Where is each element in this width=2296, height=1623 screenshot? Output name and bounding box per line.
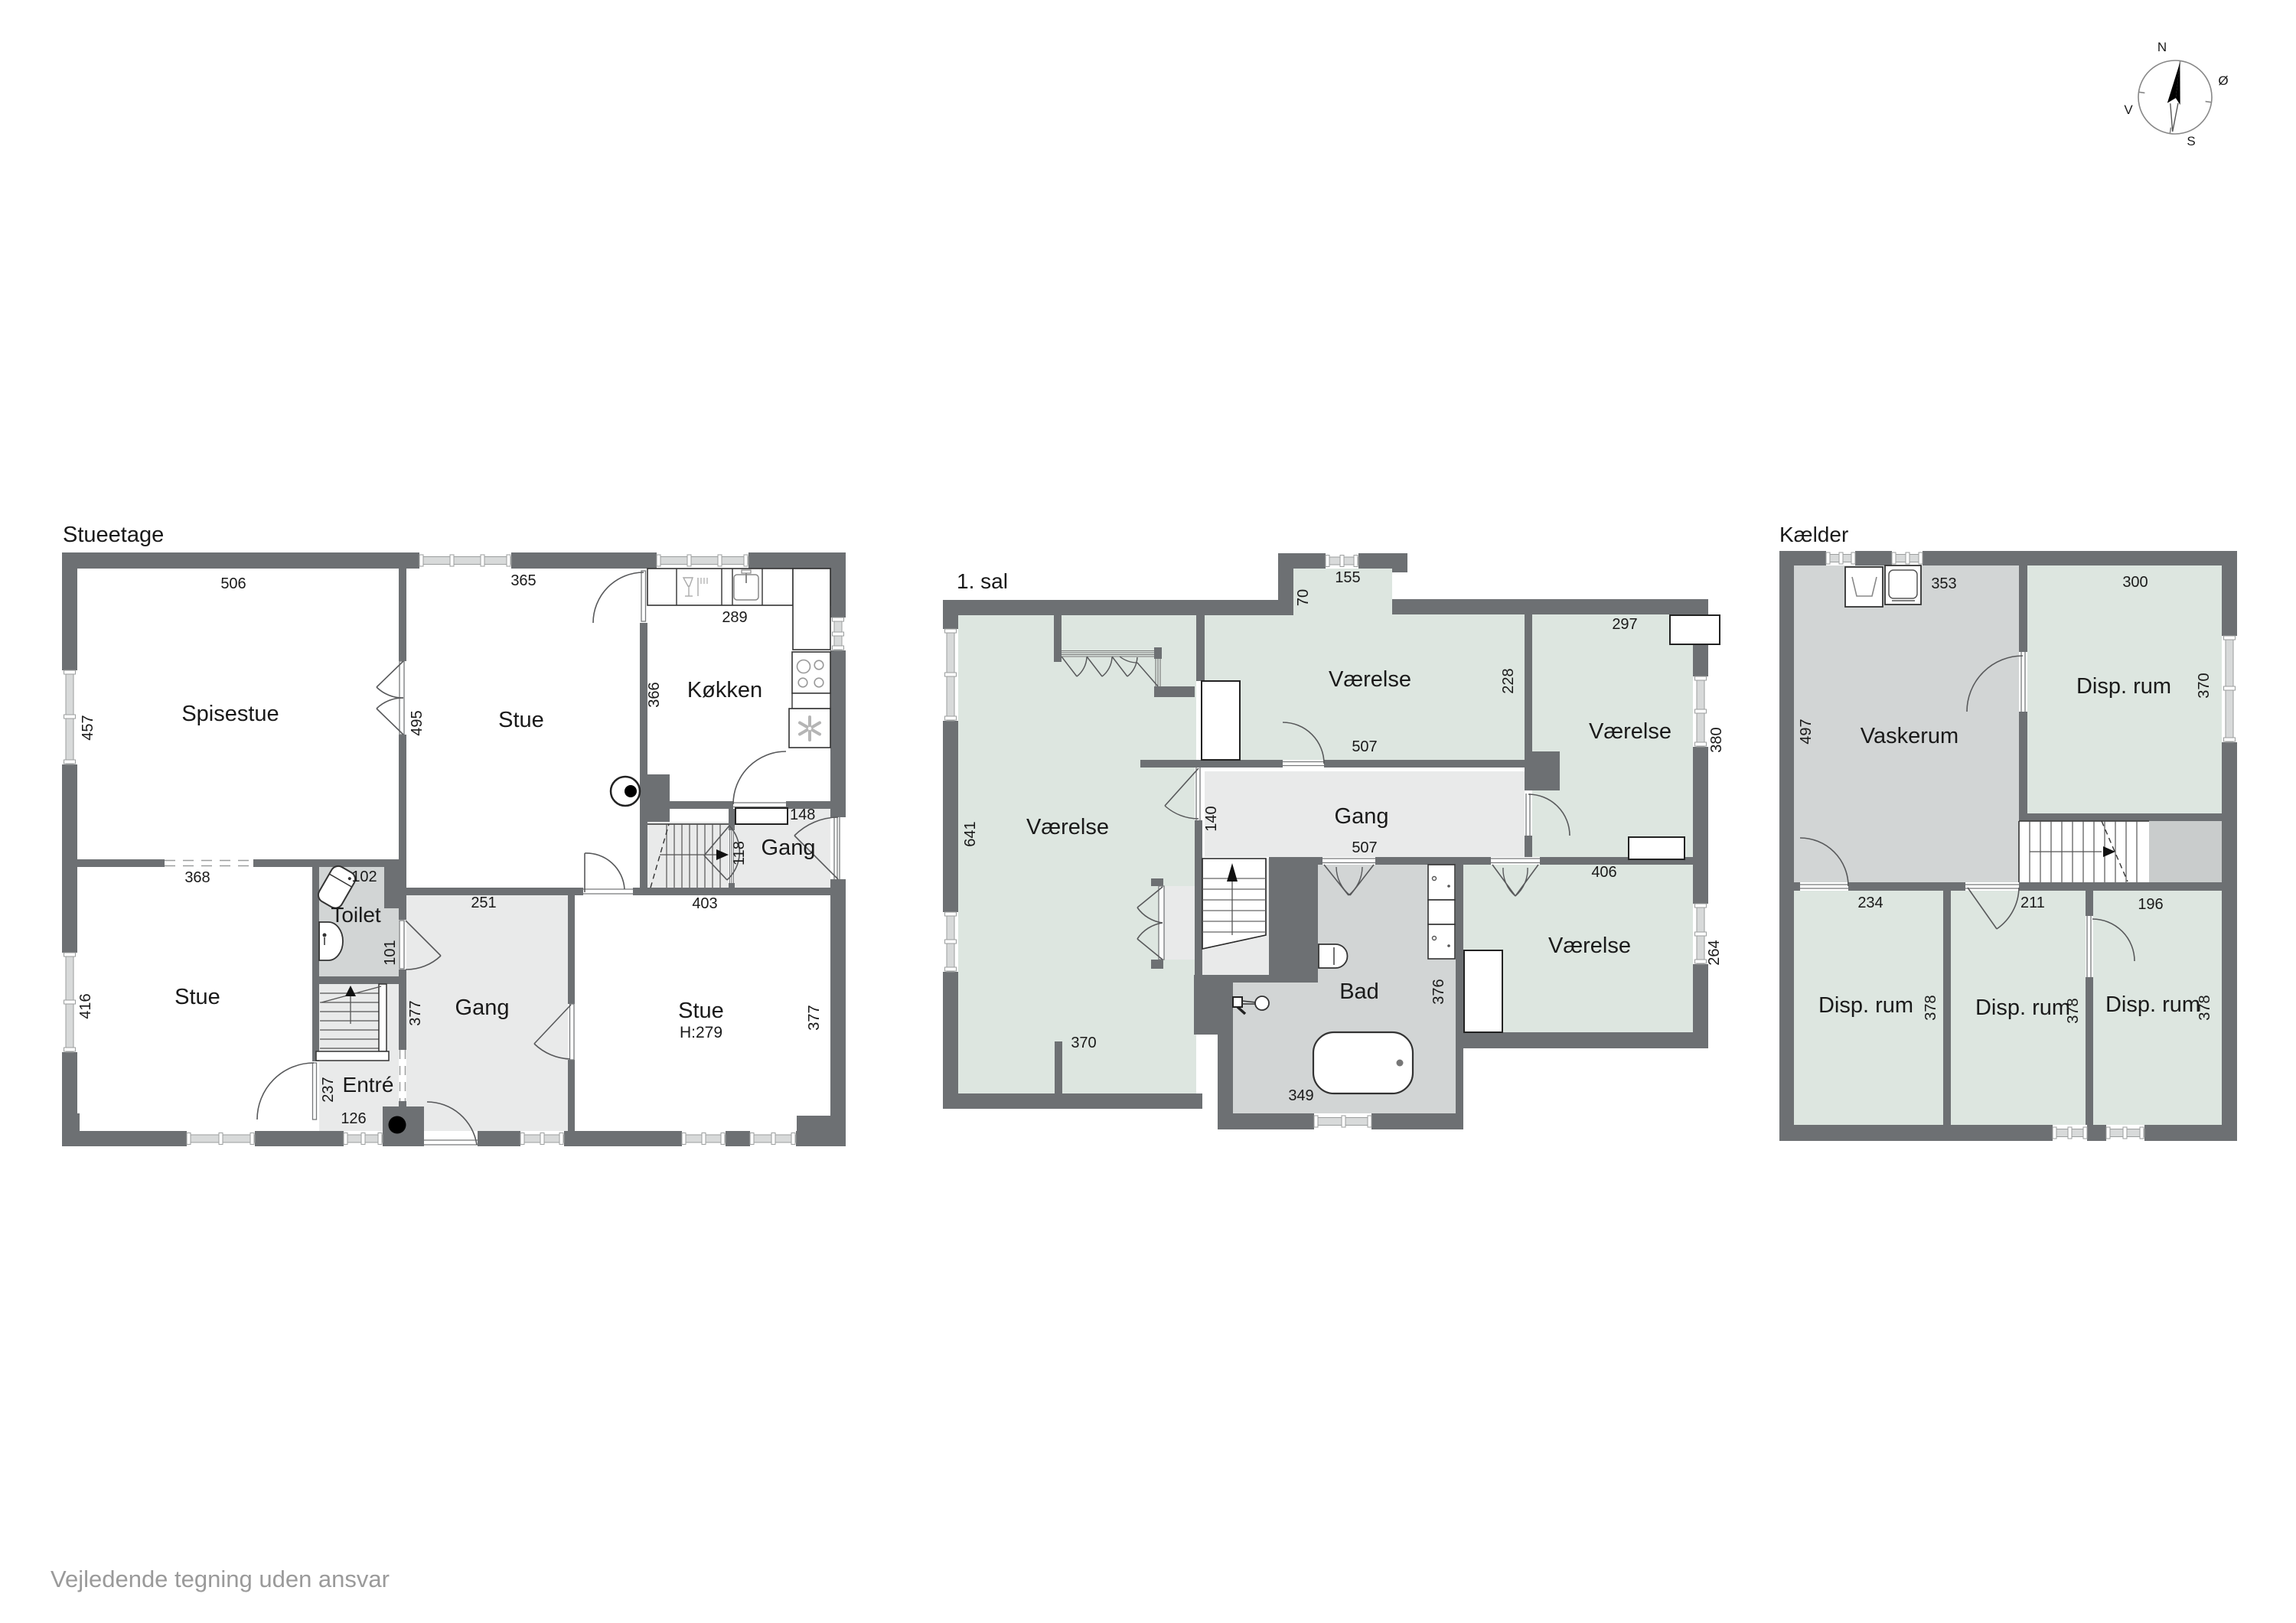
svg-text:126: 126 [341,1110,366,1127]
svg-text:118: 118 [731,841,748,865]
svg-text:289: 289 [722,609,747,626]
svg-text:378: 378 [1923,995,1939,1020]
svg-text:Gang: Gang [762,836,816,860]
svg-text:140: 140 [1203,806,1220,831]
svg-text:377: 377 [407,1000,424,1025]
svg-text:300: 300 [2122,574,2148,591]
svg-text:349: 349 [1288,1087,1313,1104]
svg-text:234: 234 [1857,895,1883,911]
svg-text:507: 507 [1352,839,1377,856]
svg-text:365: 365 [510,572,536,589]
svg-text:70: 70 [1295,589,1312,606]
svg-text:378: 378 [2065,998,2082,1023]
svg-text:Vaskerum: Vaskerum [1861,724,1958,748]
svg-text:Kælder: Kælder [1779,523,1848,546]
svg-text:237: 237 [320,1077,337,1102]
svg-text:366: 366 [646,682,663,707]
svg-text:297: 297 [1612,616,1637,633]
svg-text:V: V [2124,103,2133,117]
svg-text:Gang: Gang [455,996,510,1020]
svg-text:Stue: Stue [498,708,544,732]
svg-text:155: 155 [1335,569,1360,586]
svg-text:Værelse: Værelse [1026,815,1109,839]
svg-text:Disp. rum: Disp. rum [2076,674,2171,699]
svg-text:370: 370 [2196,673,2213,698]
svg-text:641: 641 [962,821,979,846]
svg-text:S: S [2187,134,2195,148]
svg-text:264: 264 [1706,940,1723,965]
svg-text:368: 368 [184,869,210,886]
svg-text:406: 406 [1591,864,1616,881]
svg-text:507: 507 [1352,738,1377,755]
svg-text:Vejledende tegning uden ansvar: Vejledende tegning uden ansvar [51,1566,390,1592]
svg-text:495: 495 [409,710,426,735]
svg-text:102: 102 [351,869,377,885]
svg-text:Køkken: Køkken [687,678,762,702]
svg-text:Ø: Ø [2218,73,2228,88]
svg-text:Stue: Stue [678,999,724,1023]
svg-text:Spisestue: Spisestue [181,702,279,726]
svg-text:H:279: H:279 [680,1024,722,1041]
svg-text:416: 416 [77,993,94,1018]
svg-text:370: 370 [1071,1035,1096,1051]
svg-text:211: 211 [2020,895,2045,911]
svg-text:Entré: Entré [343,1073,394,1097]
svg-text:Disp. rum: Disp. rum [2105,992,2200,1017]
svg-text:378: 378 [2197,995,2213,1020]
svg-text:377: 377 [806,1005,823,1030]
svg-text:N: N [2157,40,2167,54]
svg-text:380: 380 [1708,727,1725,752]
svg-text:228: 228 [1500,668,1517,693]
svg-text:1. sal: 1. sal [957,569,1008,593]
svg-text:457: 457 [80,715,96,740]
svg-text:101: 101 [382,940,399,965]
svg-text:Værelse: Værelse [1589,719,1671,744]
svg-text:506: 506 [220,575,246,592]
svg-text:196: 196 [2138,896,2163,913]
svg-text:Værelse: Værelse [1329,667,1411,692]
svg-text:497: 497 [1798,719,1815,744]
svg-text:Stue: Stue [174,985,220,1009]
svg-text:Disp. rum: Disp. rum [1818,993,1913,1018]
svg-text:Bad: Bad [1339,979,1379,1004]
svg-text:Gang: Gang [1335,804,1389,829]
svg-text:Toilet: Toilet [331,903,381,927]
svg-text:376: 376 [1430,979,1447,1004]
svg-text:Disp. rum: Disp. rum [1975,996,2070,1020]
svg-text:Værelse: Værelse [1548,934,1631,958]
svg-text:251: 251 [471,895,496,911]
svg-text:403: 403 [692,895,717,912]
svg-text:353: 353 [1931,575,1956,592]
svg-text:Stueetage: Stueetage [63,523,164,547]
svg-text:148: 148 [790,807,815,823]
